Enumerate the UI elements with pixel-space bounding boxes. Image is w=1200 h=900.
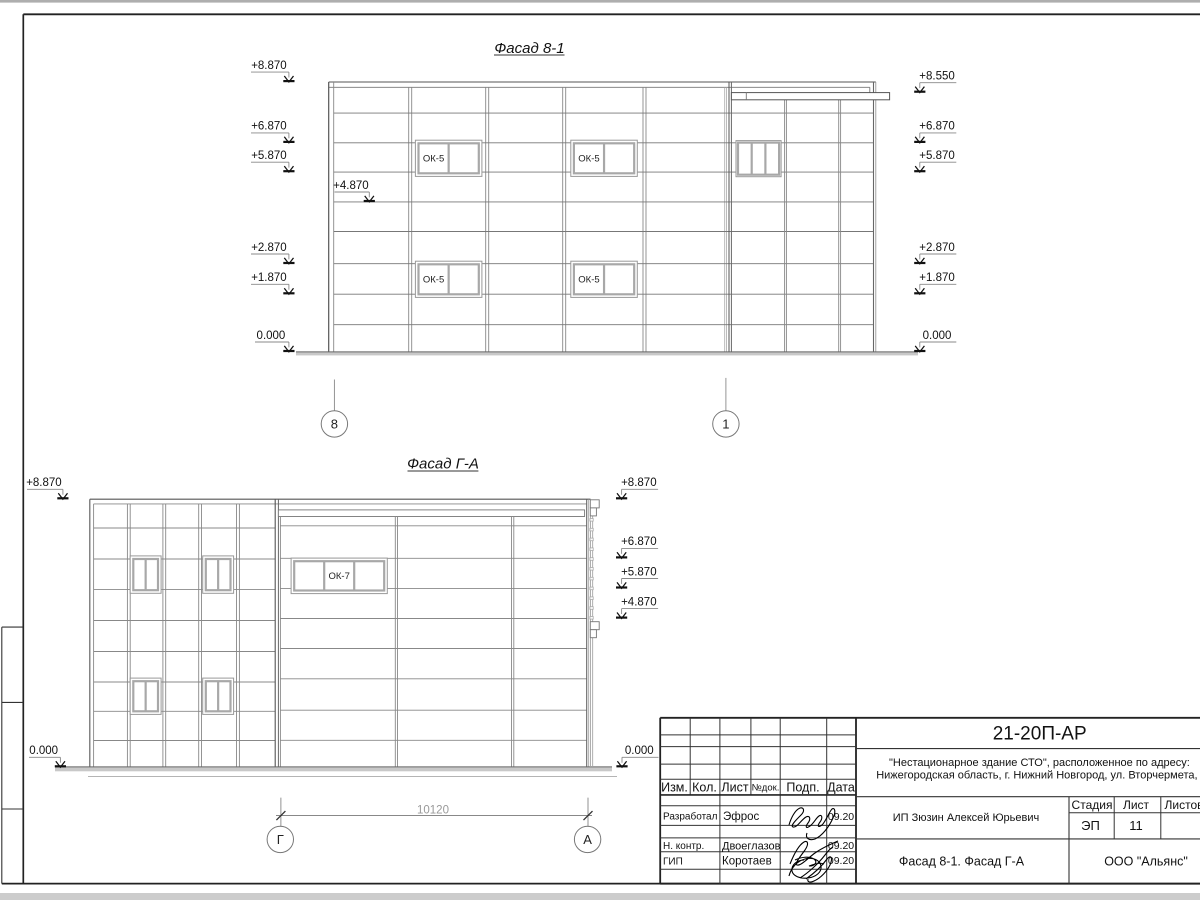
svg-text:+6.870: +6.870	[251, 121, 287, 133]
svg-text:Кол.: Кол.	[692, 781, 717, 795]
svg-text:Н. контр.: Н. контр.	[663, 841, 704, 852]
svg-text:Стадия: Стадия	[1072, 798, 1113, 812]
svg-text:+1.870: +1.870	[251, 272, 287, 284]
svg-text:+2.870: +2.870	[919, 242, 955, 254]
svg-text:Нижегородская область, г. Нижн: Нижегородская область, г. Нижний Новгоро…	[876, 770, 1200, 782]
svg-text:А: А	[583, 832, 592, 847]
svg-text:"Нестационарное здание СТО", р: "Нестационарное здание СТО", расположенн…	[889, 757, 1190, 769]
svg-text:+5.870: +5.870	[621, 566, 657, 578]
svg-text:+8.870: +8.870	[251, 60, 287, 72]
svg-text:ИП Зюзин Алексей Юрьевич: ИП Зюзин Алексей Юрьевич	[893, 812, 1040, 824]
svg-text:ГИП: ГИП	[663, 857, 683, 868]
svg-text:№док.: №док.	[752, 783, 780, 794]
svg-text:0.000: 0.000	[257, 330, 286, 342]
svg-text:Изм.: Изм.	[661, 781, 688, 795]
svg-text:Эфрос: Эфрос	[723, 811, 760, 823]
svg-text:+6.870: +6.870	[919, 121, 955, 133]
svg-text:Г: Г	[277, 832, 284, 847]
svg-text:0.000: 0.000	[29, 745, 58, 757]
svg-text:Лист: Лист	[1123, 798, 1150, 812]
svg-text:+8.550: +8.550	[919, 71, 955, 83]
svg-text:ОК-7: ОК-7	[329, 571, 350, 582]
svg-text:+6.870: +6.870	[621, 536, 657, 548]
svg-text:10120: 10120	[417, 805, 449, 817]
svg-text:+5.870: +5.870	[251, 150, 287, 162]
svg-text:ООО "Альянс": ООО "Альянс"	[1104, 855, 1188, 869]
svg-text:ОК-5: ОК-5	[423, 154, 444, 165]
svg-text:Двоеглазов: Двоеглазов	[722, 841, 781, 853]
svg-text:1: 1	[722, 417, 729, 432]
svg-text:ОК-5: ОК-5	[578, 275, 599, 286]
svg-text:ОК-5: ОК-5	[578, 154, 599, 165]
svg-text:0.000: 0.000	[923, 330, 952, 342]
svg-text:+4.870: +4.870	[333, 180, 369, 192]
svg-text:+4.870: +4.870	[621, 596, 657, 608]
svg-text:+8.870: +8.870	[26, 477, 62, 489]
svg-text:Дата: Дата	[827, 781, 855, 795]
svg-text:Фасад 8-1. Фасад Г-А: Фасад 8-1. Фасад Г-А	[899, 855, 1025, 869]
svg-text:Фасад 8-1: Фасад 8-1	[494, 40, 564, 57]
svg-text:+8.870: +8.870	[621, 477, 657, 489]
svg-text:+5.870: +5.870	[919, 150, 955, 162]
svg-text:ЭП: ЭП	[1081, 818, 1100, 833]
svg-text:Фасад Г-А: Фасад Г-А	[407, 456, 479, 473]
svg-text:ОК-5: ОК-5	[423, 275, 444, 286]
svg-text:21-20П-АР: 21-20П-АР	[993, 724, 1087, 745]
svg-text:Подп.: Подп.	[786, 781, 819, 795]
svg-text:8: 8	[331, 417, 338, 432]
svg-text:Листов: Листов	[1165, 798, 1200, 812]
svg-text:09.20: 09.20	[828, 840, 854, 852]
svg-text:Разработал: Разработал	[663, 811, 718, 823]
svg-text:11: 11	[1129, 818, 1143, 833]
svg-text:0.000: 0.000	[625, 745, 654, 757]
svg-text:Лист: Лист	[721, 781, 748, 795]
svg-text:+2.870: +2.870	[251, 242, 287, 254]
svg-text:+1.870: +1.870	[919, 272, 955, 284]
svg-text:Коротаев: Коротаев	[722, 856, 772, 868]
